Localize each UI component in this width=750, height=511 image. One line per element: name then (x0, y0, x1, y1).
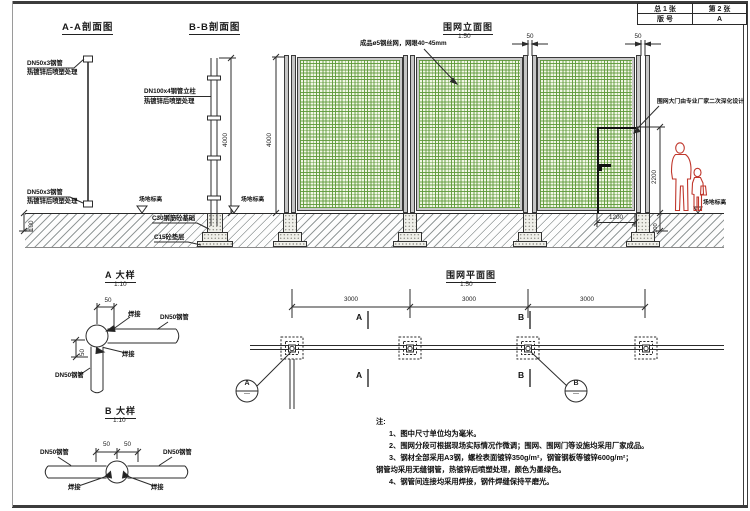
note-line: 1、图中尺寸单位均为毫米。 (389, 429, 481, 439)
detail-a-pipe-label-h: DN50钢管 (160, 314, 189, 322)
detail-bubble-b-sheet: — (569, 391, 583, 397)
note-line: 3、钢材全部采用A3钢，螺栓表面镀锌350g/m²，钢管钢板等镀锌600g/m²… (389, 453, 633, 463)
plan-section-mark-a-top: A (356, 312, 362, 322)
aa-bottom-label-line2: 热镀锌后喷塑处理 (27, 198, 77, 206)
elevation-gate-label: 围网大门由专业厂家二次深化设计 (657, 99, 744, 106)
aa-rail-label-line1: DN50x3钢管 (27, 60, 63, 68)
drawing-canvas: 总 1 张 第 2 张 版 号 A (0, 0, 750, 511)
detail-b-weld-label-r: 焊接 (151, 484, 164, 492)
elevation-dim-50-2: 50 (629, 33, 647, 40)
detail-a-dim-50-v: 50 (79, 349, 86, 356)
elevation-dim-50-1: 50 (521, 33, 539, 40)
elevation-dim-1200: 1200 (596, 214, 636, 221)
ground-level-label: 场地标高 (703, 200, 726, 207)
plan-dim-3000-2: 3000 (454, 296, 484, 303)
aa-dim-100: 100 (28, 220, 35, 231)
bb-cushion-label: C15砼垫层 (154, 234, 184, 242)
plan-section-mark-b-bottom: B (518, 370, 524, 380)
notes-heading: 注: (376, 417, 386, 427)
bb-dim-4000: 4000 (222, 133, 229, 147)
detail-a-weld-label-1: 焊接 (128, 311, 141, 319)
note-line: 2、围网分段可根据现场实际情况作微调；围网、围网门等设施均采用厂家成品。 (389, 441, 648, 451)
elevation-scale: 1:50 (458, 33, 471, 40)
section-aa-title: A-A剖面图 (62, 19, 113, 35)
ground-level-label: 场地标高 (241, 197, 264, 204)
note-line: 钢管均采用无缝钢管，热镀锌后喷塑处理，颜色为墨绿色。 (376, 465, 566, 475)
elevation-dim-100: 100 (653, 223, 659, 233)
note-line: 4、钢管间连接均采用焊接，钢件焊缝保持平磨光。 (389, 477, 554, 487)
bb-post-label-line1: DN100x4钢管立柱 (144, 88, 196, 96)
plan-dim-3000-3: 3000 (572, 296, 602, 303)
section-aa-linework (19, 56, 93, 234)
elevation-linework (272, 40, 702, 234)
elevation-dim-2200: 2200 (651, 170, 658, 184)
plan-linework (236, 289, 724, 409)
detail-a-pipe-label-v: DN50钢管 (55, 372, 84, 380)
bb-post-label-line2: 热镀锌后喷塑处理 (144, 98, 194, 106)
ground-level-label: 场地标高 (139, 197, 162, 204)
detail-b-pipe-label-r: DN50钢管 (163, 449, 192, 457)
pedestrian-figures (672, 143, 707, 211)
detail-bubble-a-letter: A (240, 380, 254, 387)
plan-section-mark-a-bottom: A (356, 370, 362, 380)
detail-b-weld-label-l: 焊接 (68, 484, 81, 492)
plan-section-mark-b-top: B (518, 312, 524, 322)
bb-foundation-label: C30钢筋砼基础 (152, 215, 195, 223)
plan-dim-3000-1: 3000 (336, 296, 366, 303)
detail-b-dim-50-r: 50 (120, 441, 135, 448)
section-bb-title: B-B剖面图 (189, 19, 240, 35)
detail-a-scale: 1:10 (114, 281, 127, 288)
aa-bottom-label-line1: DN50x3钢管 (27, 189, 63, 197)
elevation-mesh-label: 成品ø5钢丝网，网眼40~45mm (360, 40, 447, 48)
detail-b-scale: 1:10 (113, 417, 126, 424)
detail-b-pipe-label-l: DN50钢管 (40, 449, 69, 457)
plan-scale: 1:50 (460, 281, 473, 288)
elevation-dim-4000: 4000 (266, 133, 273, 147)
aa-rail-label-line2: 热镀锌后喷塑处理 (27, 69, 77, 77)
detail-b-dim-50-l: 50 (99, 441, 114, 448)
detail-bubble-a-sheet: — (240, 391, 254, 397)
linework-overlay (0, 0, 750, 511)
detail-bubble-b-letter: B (569, 380, 583, 387)
detail-a-weld-label-2: 焊接 (122, 351, 135, 359)
detail-a-dim-50-h: 50 (100, 297, 116, 304)
